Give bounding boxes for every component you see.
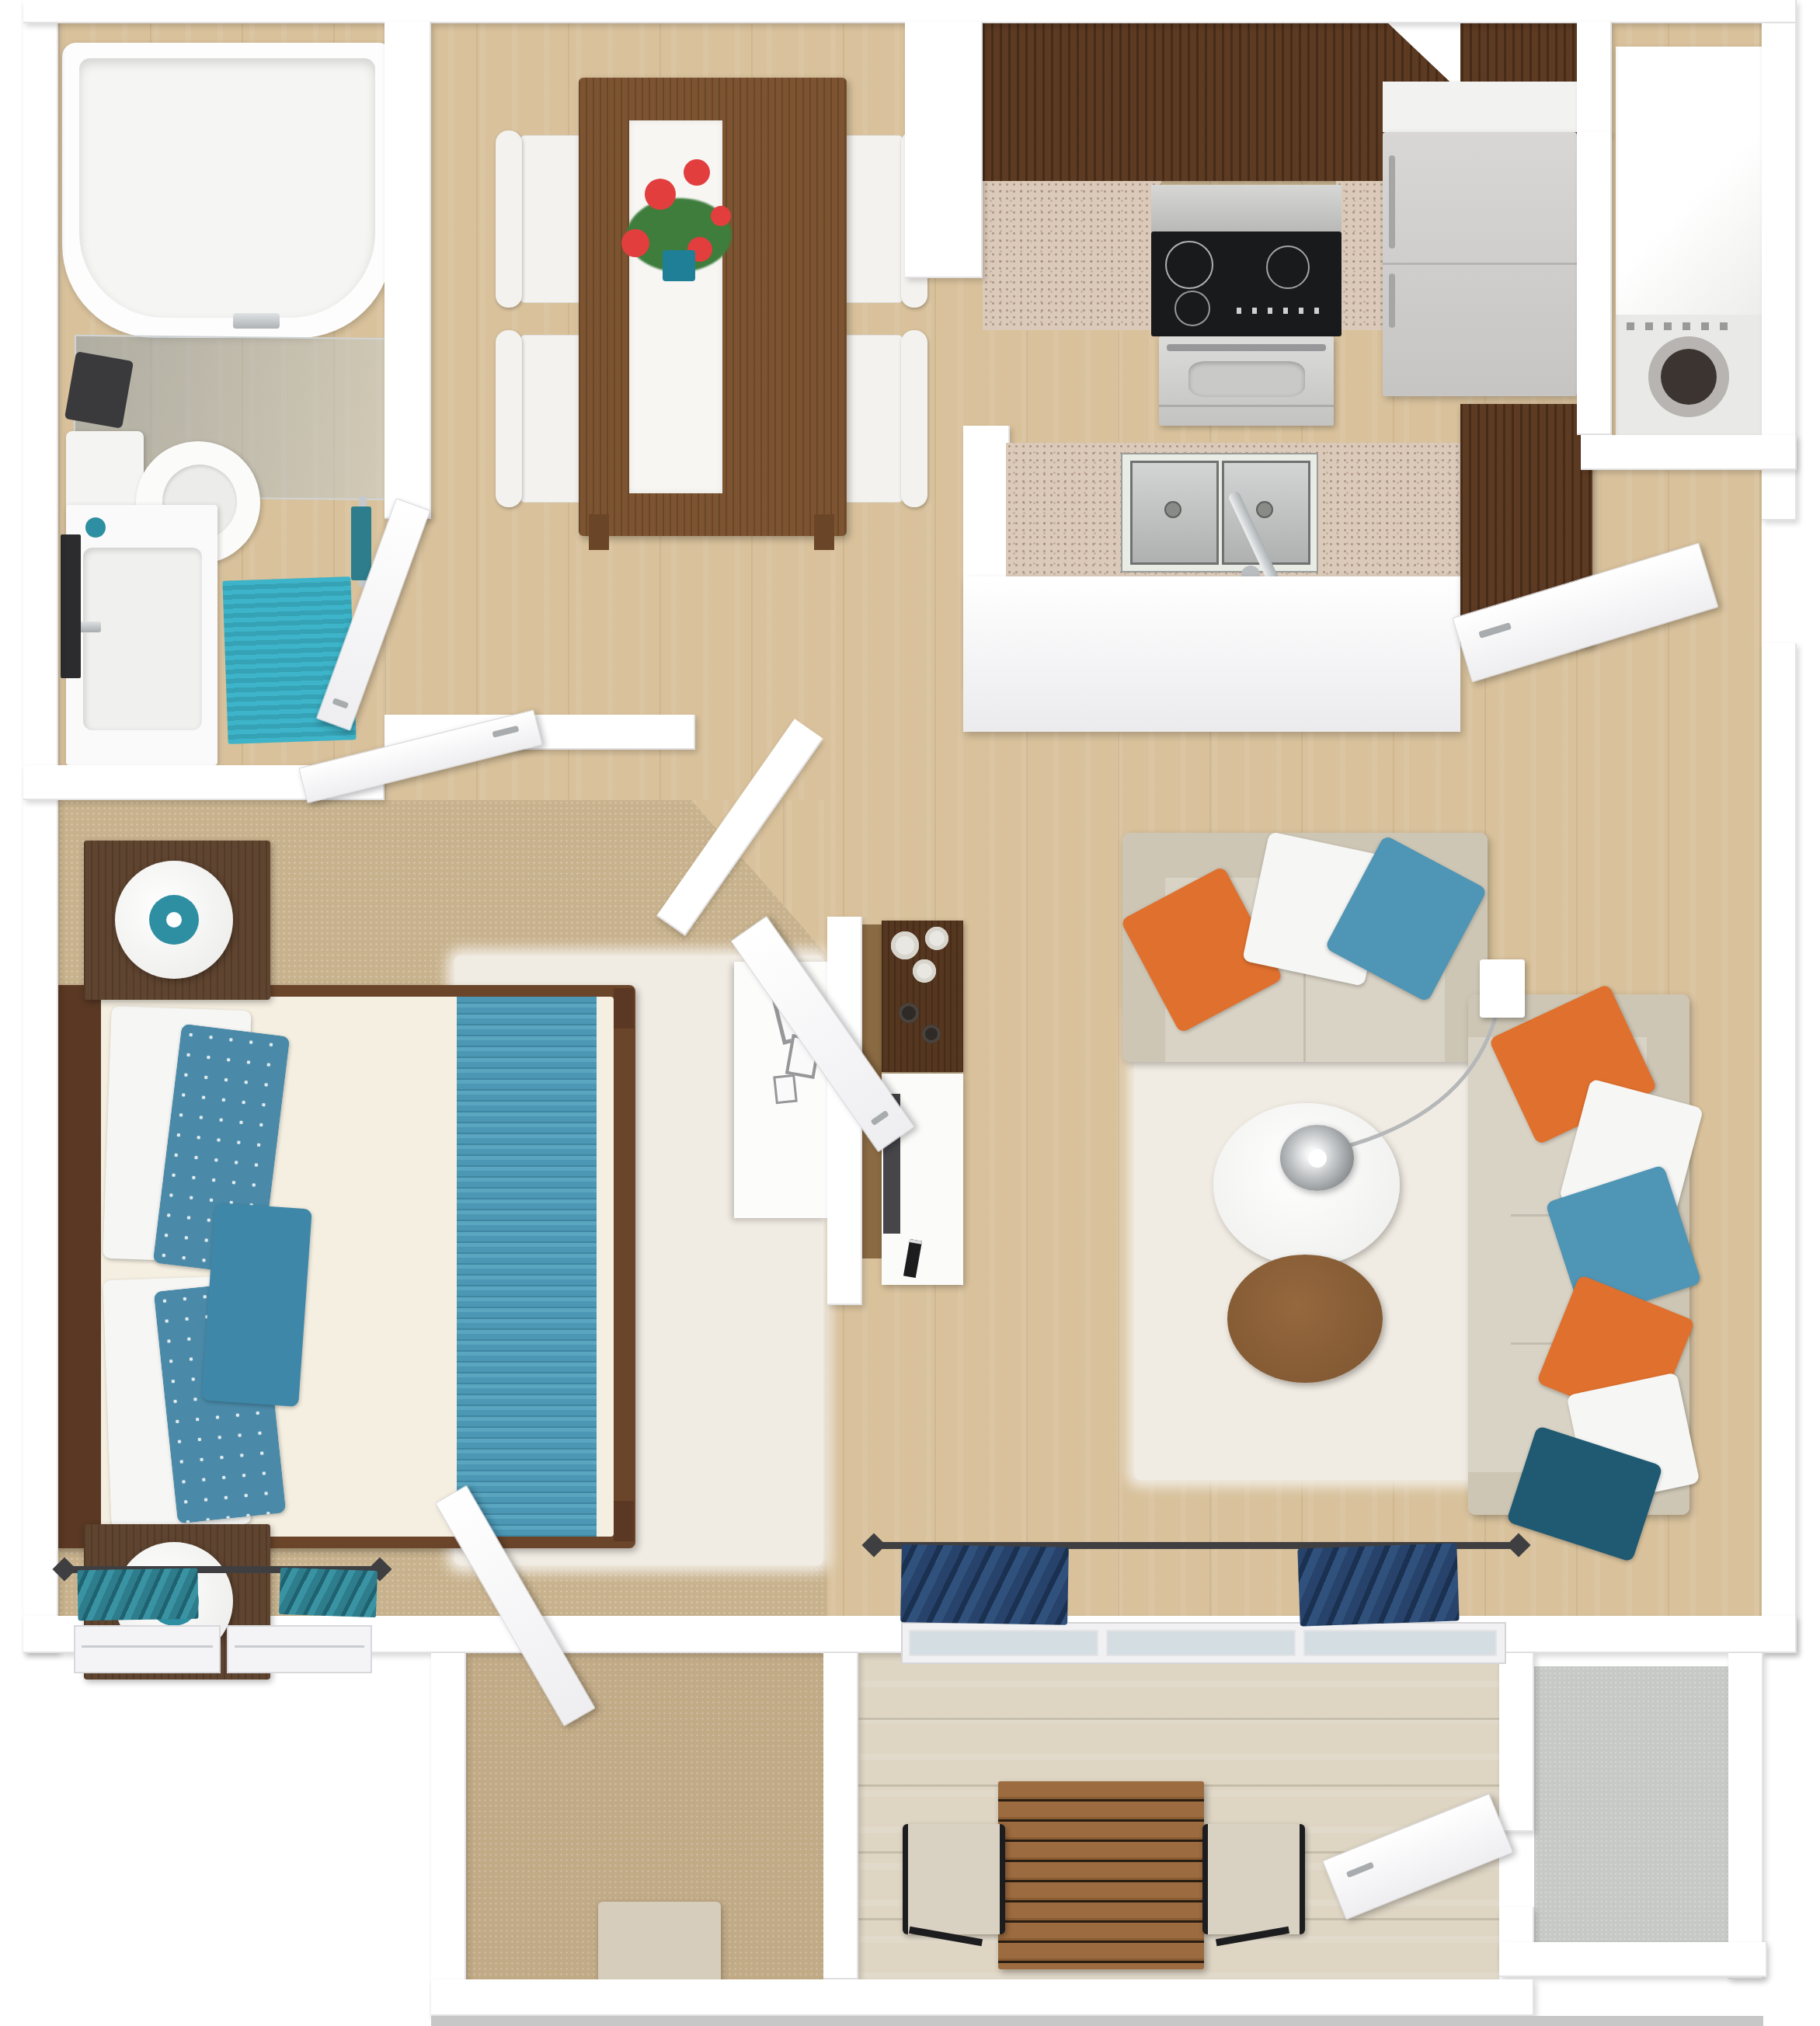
- footboard-post: [614, 988, 634, 1029]
- patio-chair: [903, 1824, 1005, 1934]
- wall-right-lower: [1762, 643, 1797, 1653]
- bowl: [922, 1025, 941, 1043]
- dining-table: [579, 78, 847, 536]
- dining-chair: [833, 330, 927, 507]
- tub-faucet: [233, 313, 280, 329]
- door-handle: [1478, 622, 1512, 639]
- glass-pane: [909, 1630, 1098, 1656]
- flower: [711, 206, 731, 226]
- vanity-basin: [83, 548, 202, 730]
- side-table-wood: [1227, 1255, 1383, 1383]
- washer-door: [1648, 336, 1729, 417]
- wall-dining-kitchen: [905, 22, 983, 278]
- door-handle: [870, 1110, 889, 1126]
- drain: [1164, 501, 1181, 518]
- flower-pot: [663, 250, 695, 281]
- vase: [913, 959, 936, 983]
- bedroom-window: [74, 1625, 221, 1673]
- headboard: [53, 985, 101, 1548]
- towel: [351, 506, 371, 580]
- chair-back: [496, 330, 522, 507]
- cooktop-controls: [1237, 308, 1322, 314]
- chair-back: [901, 330, 927, 507]
- oven-handle: [1167, 344, 1326, 351]
- wall-closet-patio: [823, 1653, 858, 1979]
- washer-front: [1616, 315, 1763, 437]
- vanity-mirror: [61, 534, 81, 678]
- living-curtain: [1297, 1543, 1459, 1626]
- bathtub: [62, 43, 392, 338]
- peninsula-front: [963, 576, 1460, 732]
- door-handle: [1346, 1862, 1374, 1878]
- fridge-handle: [1389, 155, 1395, 249]
- flower: [621, 229, 649, 257]
- range-hood: [1151, 185, 1342, 231]
- bowl: [899, 1003, 919, 1023]
- cooktop: [1151, 231, 1342, 336]
- bed-pillow-teal: [201, 1203, 311, 1407]
- door-handle: [332, 698, 350, 708]
- oven-front: [1159, 336, 1334, 426]
- arc-lamp-shade: [1280, 1125, 1354, 1191]
- hall-console: [882, 921, 963, 1072]
- dining-chair: [496, 330, 590, 507]
- drain: [1256, 501, 1273, 518]
- wall-bathroom-right: [385, 22, 431, 519]
- bed: [53, 985, 635, 1548]
- patio-table: [998, 1781, 1204, 1969]
- lamp-finial: [166, 912, 182, 928]
- table-leg: [814, 514, 834, 550]
- balcony-edge-strip: [431, 2016, 1763, 2026]
- cabinet-over-fridge: [1383, 82, 1577, 132]
- vanity: [66, 505, 217, 765]
- bathtub-basin: [79, 58, 375, 318]
- flower: [684, 159, 710, 186]
- table-leg: [589, 514, 609, 550]
- toilet-brush-holder: [64, 351, 134, 429]
- dining-chair: [496, 131, 590, 308]
- chair-back: [496, 131, 522, 308]
- wall-closet-left: [431, 1653, 466, 2016]
- sliding-glass-door: [901, 1622, 1506, 1664]
- table-lamp: [115, 861, 233, 979]
- remote: [903, 1239, 922, 1278]
- wall-laundry-left: [1577, 132, 1612, 435]
- wall-storage-right: [1728, 1653, 1763, 1979]
- vase: [925, 927, 948, 950]
- lamp-bulb: [1308, 1149, 1327, 1168]
- burner: [1266, 245, 1310, 289]
- patio-chair: [1202, 1824, 1305, 1934]
- wall-laundry-left-top: [1577, 22, 1612, 134]
- bedroom-curtain: [77, 1568, 198, 1621]
- picture-frame: [773, 1074, 798, 1105]
- washer-controls: [1627, 322, 1728, 330]
- wall-storage-bottom: [1499, 1942, 1767, 1977]
- arc-lamp-base: [1480, 959, 1525, 1018]
- oven-drawer-line: [1159, 405, 1334, 407]
- oven-window: [1188, 361, 1305, 397]
- flower: [645, 179, 676, 210]
- bedroom-curtain: [279, 1568, 378, 1617]
- vase: [891, 931, 919, 959]
- wall-top: [23, 0, 1797, 23]
- bedroom-window: [227, 1625, 372, 1673]
- burner: [1165, 241, 1213, 289]
- sink-surround: [1121, 453, 1318, 573]
- footboard-post: [614, 1501, 634, 1541]
- bed-runner: [457, 997, 597, 1537]
- fridge-handle: [1389, 273, 1395, 328]
- washer: [1616, 47, 1763, 315]
- burner: [1174, 291, 1210, 326]
- door-handle: [492, 726, 519, 738]
- vanity-cup: [85, 517, 106, 538]
- glass-pane: [1303, 1630, 1497, 1656]
- counter-left: [983, 181, 1161, 330]
- living-curtain: [900, 1544, 1069, 1625]
- fridge-door-split: [1383, 263, 1577, 265]
- wall-storage-left-a: [1499, 1653, 1534, 1832]
- glass-pane: [1106, 1630, 1296, 1656]
- wall-under-laundry: [1581, 435, 1797, 470]
- wall-patio-bottom: [431, 1979, 1534, 2016]
- storage-floor: [1534, 1666, 1728, 1946]
- ottoman: [598, 1902, 721, 1991]
- floor-plan: [0, 0, 1820, 2026]
- refrigerator: [1383, 132, 1577, 396]
- wall-left: [23, 0, 58, 1653]
